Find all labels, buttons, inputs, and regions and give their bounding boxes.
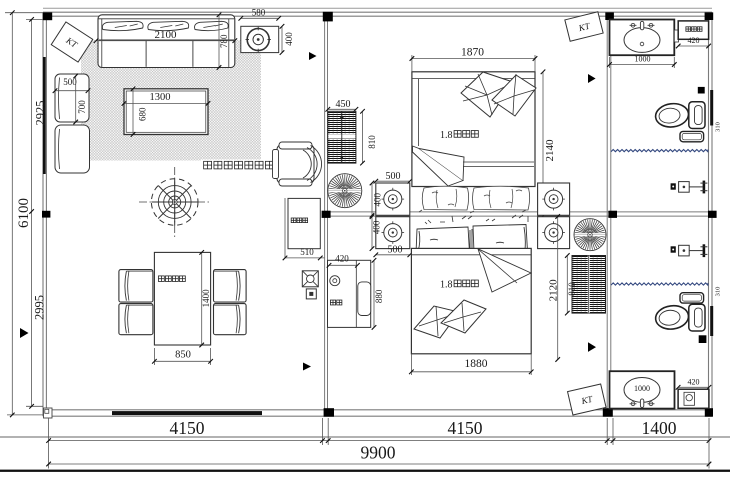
svg-text:2995: 2995 <box>32 295 46 320</box>
svg-text:1400: 1400 <box>642 418 677 438</box>
svg-text:2925: 2925 <box>33 101 47 126</box>
svg-text:1300: 1300 <box>150 92 171 103</box>
svg-text:680: 680 <box>138 107 148 121</box>
svg-text:1.8: 1.8 <box>440 130 453 141</box>
svg-text:510: 510 <box>300 247 314 257</box>
svg-text:420: 420 <box>335 253 349 263</box>
svg-text:500: 500 <box>63 77 77 87</box>
svg-text:400: 400 <box>372 220 382 234</box>
svg-text:580: 580 <box>252 7 266 17</box>
svg-text:780: 780 <box>219 34 229 48</box>
svg-text:880: 880 <box>374 289 384 303</box>
svg-text:700: 700 <box>77 100 87 114</box>
svg-text:2100: 2100 <box>155 29 178 41</box>
svg-text:400: 400 <box>284 32 294 46</box>
svg-text:1400: 1400 <box>201 289 211 308</box>
svg-text:310: 310 <box>714 287 721 297</box>
svg-text:4150: 4150 <box>170 418 205 438</box>
svg-text:9900: 9900 <box>361 443 396 463</box>
svg-text:500: 500 <box>386 171 401 182</box>
svg-text:4150: 4150 <box>448 418 483 438</box>
svg-text:1000: 1000 <box>635 54 651 63</box>
svg-text:450: 450 <box>336 99 351 110</box>
svg-text:810: 810 <box>567 282 577 296</box>
svg-text:310: 310 <box>714 122 721 132</box>
svg-text:420: 420 <box>688 36 700 45</box>
svg-text:1870: 1870 <box>461 47 484 59</box>
svg-text:1000: 1000 <box>634 384 650 393</box>
svg-text:2120: 2120 <box>548 279 560 302</box>
svg-text:1880: 1880 <box>465 358 488 370</box>
svg-text:500: 500 <box>388 244 403 255</box>
svg-text:810: 810 <box>367 135 377 149</box>
svg-text:850: 850 <box>175 350 191 361</box>
svg-text:420: 420 <box>688 377 700 386</box>
svg-text:2140: 2140 <box>544 139 556 162</box>
svg-text:1.8: 1.8 <box>440 280 453 291</box>
svg-text:400: 400 <box>373 192 383 206</box>
